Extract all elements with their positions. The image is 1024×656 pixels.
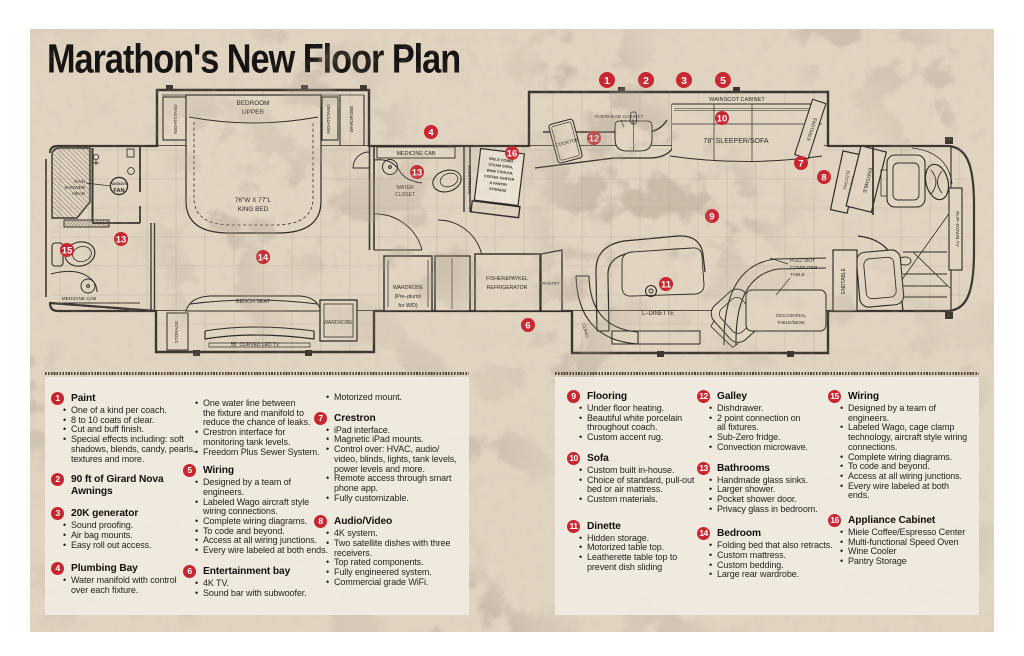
svg-text:OCCASIONAL: OCCASIONAL bbox=[776, 313, 807, 318]
svg-text:PULL–OUT: PULL–OUT bbox=[790, 258, 815, 264]
svg-text:RAIN: RAIN bbox=[74, 179, 85, 184]
svg-text:WARDROBE: WARDROBE bbox=[323, 320, 353, 326]
svg-text:WARDROBE: WARDROBE bbox=[393, 285, 424, 291]
svg-text:13: 13 bbox=[412, 166, 422, 177]
svg-text:10: 10 bbox=[717, 112, 727, 123]
svg-text:TABLE/DESK: TABLE/DESK bbox=[777, 320, 806, 325]
svg-text:76"W X 77"L: 76"W X 77"L bbox=[235, 197, 272, 204]
svg-text:CURIO: CURIO bbox=[581, 323, 590, 339]
svg-text:78" SLEEPER/SOFA: 78" SLEEPER/SOFA bbox=[703, 138, 768, 145]
svg-text:BEDROOM: BEDROOM bbox=[236, 100, 269, 107]
svg-text:TABLE: TABLE bbox=[790, 272, 805, 278]
svg-text:STORAGE: STORAGE bbox=[174, 321, 179, 343]
svg-text:2: 2 bbox=[643, 75, 649, 87]
svg-text:15: 15 bbox=[62, 244, 72, 255]
svg-text:REFRIGERATOR: REFRIGERATOR bbox=[487, 285, 528, 291]
svg-text:5: 5 bbox=[720, 75, 726, 87]
svg-text:4: 4 bbox=[428, 126, 434, 137]
svg-text:FISHER&PAYKEL: FISHER&PAYKEL bbox=[486, 276, 528, 282]
svg-text:FLIP–DOWN TV: FLIP–DOWN TV bbox=[954, 211, 960, 247]
svg-text:WATER: WATER bbox=[396, 185, 414, 191]
svg-text:UPPER: UPPER bbox=[242, 109, 264, 116]
svg-text:12: 12 bbox=[589, 132, 599, 143]
svg-text:1: 1 bbox=[604, 75, 610, 87]
svg-text:9: 9 bbox=[709, 210, 714, 221]
svg-text:L–DINETTE: L–DINETTE bbox=[642, 311, 674, 317]
svg-text:KING BED: KING BED bbox=[238, 206, 269, 213]
svg-text:WARDROBE: WARDROBE bbox=[349, 106, 354, 133]
svg-text:FAN: FAN bbox=[113, 188, 124, 194]
svg-text:CLOSET: CLOSET bbox=[395, 192, 415, 198]
svg-text:(Pre–plumb: (Pre–plumb bbox=[395, 294, 422, 300]
svg-text:MEDICINE CAB: MEDICINE CAB bbox=[397, 151, 436, 157]
svg-text:WAINSCOT CABINET: WAINSCOT CABINET bbox=[709, 97, 765, 103]
svg-text:16: 16 bbox=[507, 147, 517, 158]
svg-text:MEDICINE CAB: MEDICINE CAB bbox=[62, 296, 97, 302]
svg-text:HEAD: HEAD bbox=[72, 191, 85, 196]
svg-text:COMPUTER: COMPUTER bbox=[790, 265, 818, 271]
svg-text:PANTRY: PANTRY bbox=[542, 281, 559, 286]
svg-text:SHOWER: SHOWER bbox=[64, 185, 85, 190]
svg-text:55" CURVED LED TV: 55" CURVED LED TV bbox=[231, 342, 280, 348]
svg-text:7: 7 bbox=[798, 157, 803, 168]
svg-text:13: 13 bbox=[116, 233, 126, 244]
svg-text:3: 3 bbox=[681, 75, 687, 87]
svg-text:11: 11 bbox=[661, 278, 671, 289]
svg-text:NIGHTSTAND: NIGHTSTAND bbox=[326, 104, 331, 134]
svg-text:for W/D): for W/D) bbox=[398, 303, 418, 309]
svg-text:6: 6 bbox=[525, 319, 530, 330]
svg-text:ENDTABLE: ENDTABLE bbox=[841, 267, 847, 294]
svg-text:ELECTRICAL: ELECTRICAL bbox=[466, 165, 472, 195]
svg-text:NIGHTSTAND: NIGHTSTAND bbox=[173, 104, 178, 134]
svg-text:FANTASTIC: FANTASTIC bbox=[110, 182, 128, 186]
svg-text:14: 14 bbox=[258, 251, 269, 262]
svg-text:BENCH SEAT: BENCH SEAT bbox=[236, 299, 271, 305]
svg-text:OVERHEAD CABINET: OVERHEAD CABINET bbox=[594, 114, 643, 120]
svg-text:8: 8 bbox=[821, 171, 826, 182]
